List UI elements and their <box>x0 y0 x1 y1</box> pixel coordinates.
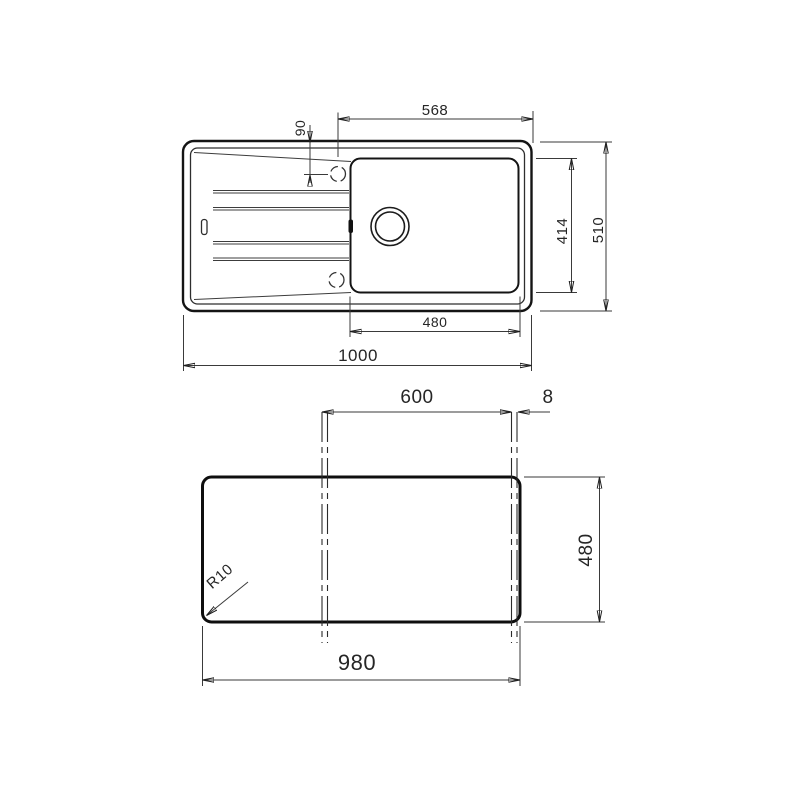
dim-cutout-depth: 480 <box>524 477 605 622</box>
dim-overall-width-label: 1000 <box>338 346 378 365</box>
drain-inner-circle <box>376 212 405 241</box>
drainer-grooves <box>213 191 349 261</box>
tap-hole-bottom <box>329 273 344 288</box>
dim-tap-offset-label: 90 <box>292 120 308 137</box>
dim-tap-to-edge: 568 <box>338 102 533 157</box>
dim-bowl-depth-label: 414 <box>554 218 571 245</box>
dim-overall-depth: 510 <box>540 142 612 311</box>
dim-tap-to-edge-label: 568 <box>422 102 449 119</box>
dim-overall-width: 1000 <box>184 315 532 371</box>
cutout-centerlines <box>322 412 517 643</box>
drainer-slope-line-bottom <box>194 293 351 300</box>
dim-overall-depth-label: 510 <box>590 217 607 244</box>
cutout-template-view <box>203 412 521 643</box>
sink-outline <box>183 141 532 311</box>
dim-cutout-depth-label: 480 <box>576 533 597 566</box>
sink-plan-view <box>183 141 532 311</box>
tap-hole-top <box>331 167 346 182</box>
bowl-overflow-notch <box>349 220 354 234</box>
drawing-page: 568 90 414 510 480 1000 <box>0 0 800 800</box>
drain-outer-circle <box>371 208 409 246</box>
dim-edge-gap: 8 <box>518 387 554 412</box>
dim-tap-offset: 90 <box>292 120 328 183</box>
dim-bowl-width-label: 480 <box>423 314 448 330</box>
dim-centerline-span: 600 <box>322 387 512 412</box>
dim-corner-radius-label: R10 <box>204 561 237 593</box>
dim-corner-radius: R10 <box>204 561 248 616</box>
dim-bowl-depth: 414 <box>536 159 577 293</box>
dim-bowl-width: 480 <box>350 297 520 338</box>
dim-cutout-width: 980 <box>203 626 521 686</box>
drainer-slope-line-top <box>194 153 351 162</box>
sink-rim <box>191 148 525 304</box>
dim-cutout-width-label: 980 <box>338 650 376 675</box>
technical-drawing: 568 90 414 510 480 1000 <box>0 0 800 800</box>
dim-centerline-span-label: 600 <box>400 387 433 408</box>
dim-edge-gap-label: 8 <box>542 387 553 408</box>
overflow-slot <box>202 220 208 235</box>
cutout-outline <box>203 477 521 622</box>
